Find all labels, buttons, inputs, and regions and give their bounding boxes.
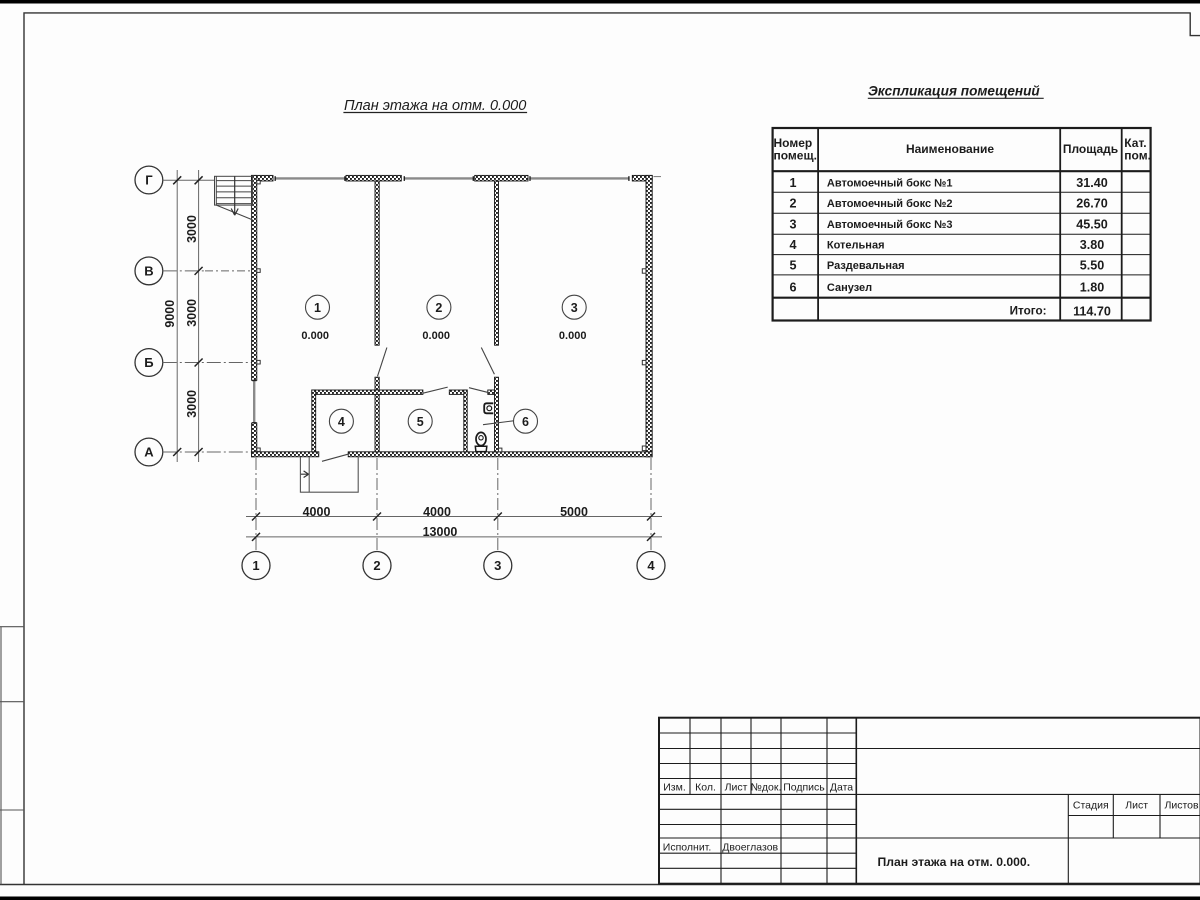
svg-text:9000: 9000 [163,300,177,328]
svg-text:Дата: Дата [830,782,853,794]
svg-text:26.70: 26.70 [1076,197,1108,211]
svg-text:3: 3 [571,301,578,315]
svg-text:Итого:: Итого: [1010,305,1047,318]
svg-text:1: 1 [252,558,259,573]
svg-text:Лист: Лист [725,782,748,794]
svg-text:4000: 4000 [423,505,451,519]
svg-text:2: 2 [435,301,442,315]
svg-text:2: 2 [789,197,796,211]
svg-text:1: 1 [789,176,796,190]
svg-text:114.70: 114.70 [1073,305,1111,319]
svg-text:45.50: 45.50 [1076,218,1108,232]
svg-text:Листов: Листов [1164,800,1199,812]
svg-text:Лист: Лист [1125,800,1148,812]
svg-text:5000: 5000 [560,505,588,519]
svg-text:0.000: 0.000 [422,330,450,342]
svg-text:4: 4 [338,415,345,429]
svg-text:План этажа на отм. 0.000: План этажа на отм. 0.000 [344,98,526,114]
svg-text:3.80: 3.80 [1080,238,1105,252]
svg-text:Стадия: Стадия [1073,800,1109,812]
svg-text:0.000: 0.000 [559,330,587,342]
svg-text:4000: 4000 [303,505,331,519]
svg-text:6: 6 [789,281,796,295]
svg-text:13000: 13000 [423,525,458,539]
svg-text:Санузел: Санузел [827,282,872,294]
svg-text:3: 3 [494,558,501,573]
svg-text:Исполнит.: Исполнит. [663,842,711,854]
svg-text:Наименование: Наименование [906,142,994,156]
svg-text:5: 5 [789,259,796,273]
svg-text:Б: Б [144,355,153,370]
svg-text:5: 5 [417,415,424,429]
svg-text:А: А [144,445,154,460]
svg-text:План этажа на отм. 0.000.: План этажа на отм. 0.000. [877,855,1030,869]
svg-text:3000: 3000 [185,215,199,243]
svg-text:2: 2 [373,558,380,573]
svg-text:3: 3 [789,218,796,232]
svg-text:помещ.: помещ. [774,149,817,163]
svg-text:1: 1 [314,301,321,315]
svg-text:Площадь: Площадь [1063,142,1118,156]
svg-text:Автомоечный бокс №2: Автомоечный бокс №2 [827,198,953,210]
svg-text:Автомоечный бокс №3: Автомоечный бокс №3 [827,219,953,231]
svg-text:3000: 3000 [185,299,199,327]
svg-text:В: В [144,264,153,279]
svg-text:Подпись: Подпись [783,782,825,794]
svg-text:1.80: 1.80 [1080,281,1105,295]
svg-text:Котельная: Котельная [827,240,885,252]
svg-text:4: 4 [789,238,796,252]
svg-text:0.000: 0.000 [301,330,329,342]
svg-text:Раздевальная: Раздевальная [827,260,905,272]
svg-text:Изм.: Изм. [663,782,686,794]
svg-text:Кол.: Кол. [695,782,716,794]
svg-text:Автомоечный бокс №1: Автомоечный бокс №1 [827,177,953,189]
svg-text:Экспликация помещений: Экспликация помещений [868,83,1040,98]
svg-text:Г: Г [145,173,153,188]
svg-text:31.40: 31.40 [1076,176,1108,190]
svg-text:3000: 3000 [185,390,199,418]
svg-text:Двоеглазов: Двоеглазов [722,842,778,854]
svg-text:пом.: пом. [1124,149,1151,163]
svg-text:5.50: 5.50 [1080,259,1105,273]
svg-text:4: 4 [647,558,655,573]
svg-text:6: 6 [522,415,529,429]
svg-text:№док.: №док. [751,782,782,794]
